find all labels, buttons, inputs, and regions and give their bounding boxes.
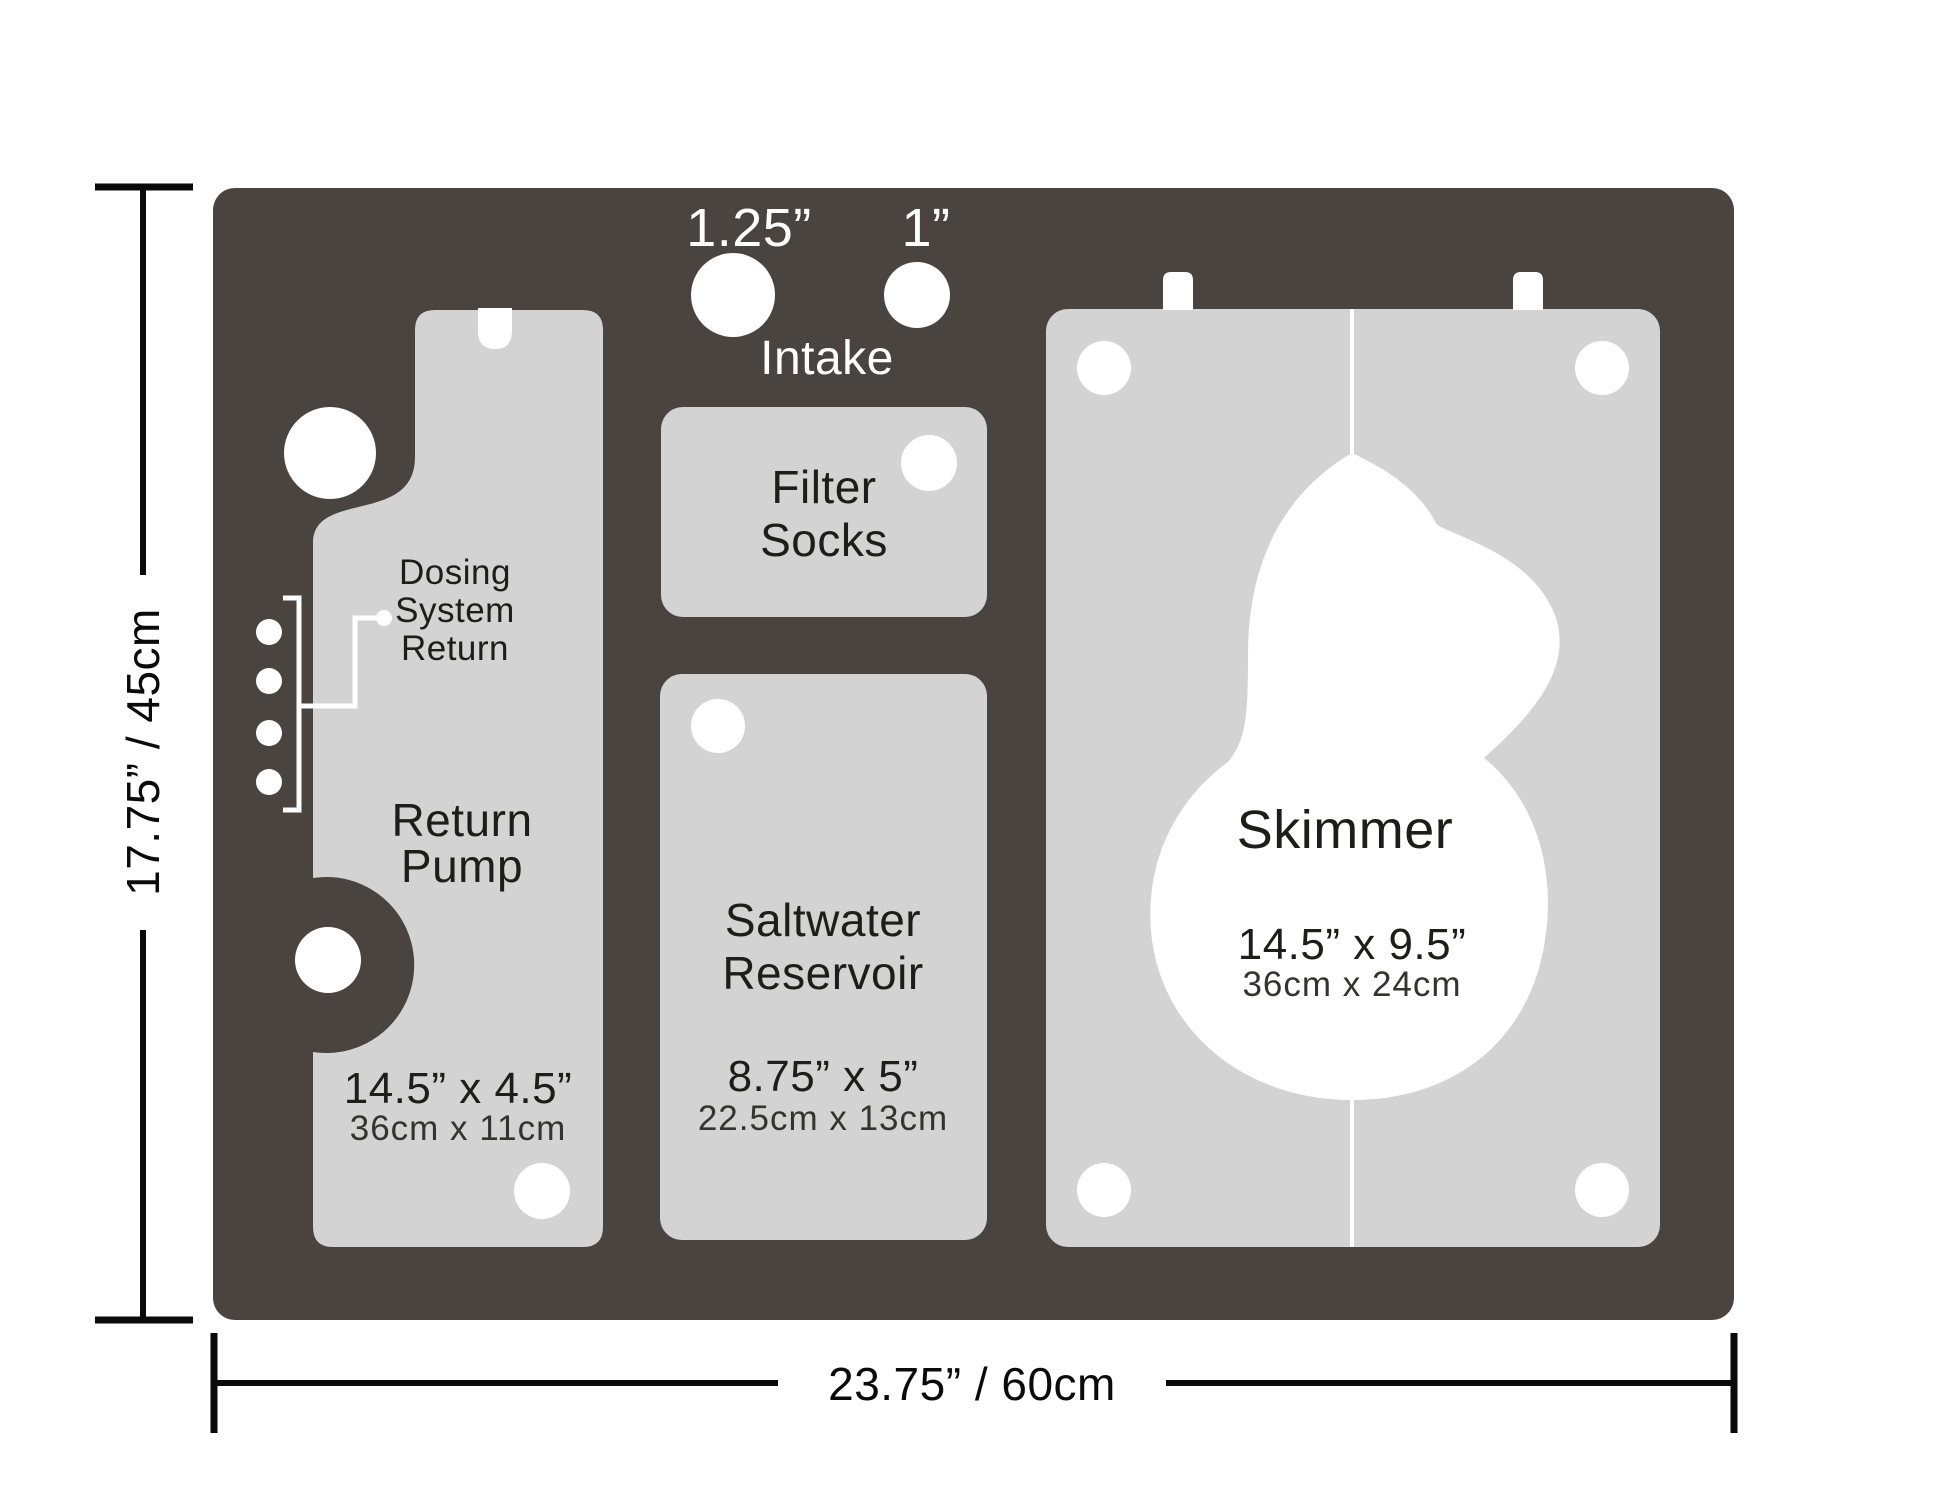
skimmer-corner-hole <box>1077 1163 1131 1217</box>
skimmer-size-inches: 14.5” x 9.5” <box>1238 920 1467 969</box>
intake-hole-small <box>884 262 950 328</box>
filter-socks-label-line2: Socks <box>760 514 888 566</box>
skimmer-size-cm: 36cm x 24cm <box>1242 965 1461 1004</box>
skimmer-tab-slot <box>1163 272 1193 310</box>
return-pump-label-line2: Pump <box>401 840 523 892</box>
return-pump-size-cm: 36cm x 11cm <box>350 1109 567 1148</box>
dosing-annotation-line2: System <box>395 591 515 630</box>
height-dimension-label: 17.75” / 45cm <box>117 608 169 896</box>
saltwater-reservoir-hole <box>691 699 745 753</box>
dosing-annotation-line3: Return <box>401 629 509 668</box>
dosing-port-hole <box>256 619 282 645</box>
filter-socks-label-line1: Filter <box>771 461 876 513</box>
return-pump-size-inches: 14.5” x 4.5” <box>344 1064 573 1113</box>
skimmer-tab-slot <box>1513 272 1543 310</box>
sump-layout-diagram: 1.25” 1” Intake Dosing System Return Ret… <box>0 0 1946 1508</box>
saltwater-size-cm: 22.5cm x 13cm <box>698 1099 948 1138</box>
dosing-port-hole <box>256 769 282 795</box>
filter-socks-hole <box>901 435 957 491</box>
return-line-hole <box>284 407 376 499</box>
return-pump-label-line1: Return <box>391 794 532 846</box>
bite-hole <box>295 927 361 993</box>
saltwater-size-inches: 8.75” x 5” <box>728 1052 919 1101</box>
skimmer-corner-hole <box>1575 341 1629 395</box>
saltwater-label-line1: Saltwater <box>725 894 921 946</box>
skimmer-corner-hole <box>1077 341 1131 395</box>
intake-large-label: 1.25” <box>686 198 812 258</box>
return-pump-slot-hole <box>478 308 512 349</box>
skimmer-label: Skimmer <box>1237 800 1454 860</box>
dosing-leader-dot <box>376 610 392 626</box>
dosing-annotation-line1: Dosing <box>399 553 511 592</box>
skimmer-corner-hole <box>1575 1163 1629 1217</box>
dosing-port-hole <box>256 720 282 746</box>
return-pump-corner-hole <box>514 1163 570 1219</box>
intake-hole-large <box>691 253 775 337</box>
width-dimension-label: 23.75” / 60cm <box>828 1358 1116 1410</box>
dosing-port-hole <box>256 668 282 694</box>
saltwater-label-line2: Reservoir <box>722 947 923 999</box>
intake-caption: Intake <box>760 332 894 385</box>
intake-small-label: 1” <box>901 198 950 258</box>
diagram-svg: 1.25” 1” Intake Dosing System Return Ret… <box>0 0 1946 1508</box>
